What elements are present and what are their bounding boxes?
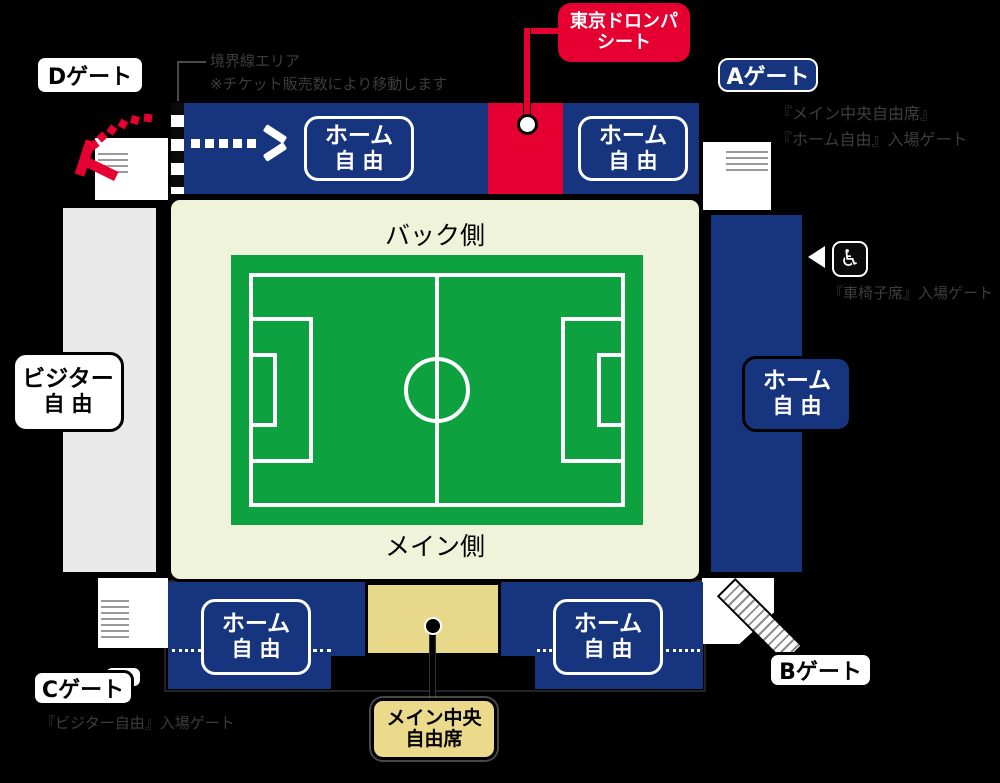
boundary-note-line1: 境界線エリア xyxy=(210,50,300,71)
stairs-c-gate xyxy=(101,596,129,642)
label-home-free-back-right: ホーム 自由 xyxy=(578,116,688,181)
label-visitor-free: ビジター 自由 xyxy=(12,352,124,432)
wheelchair-note: 『車椅子席』入場ゲート xyxy=(828,282,993,303)
main-center-callout: メイン中央 自由席 xyxy=(371,698,497,760)
stadium-seating-map: ホーム 自由 ホーム 自由 バック側 メイン側 ビジター 自由 ホーム 自由 xyxy=(0,0,1000,783)
goal-area-left xyxy=(249,353,277,427)
boundary-dotted-line xyxy=(172,649,201,652)
gate-d-label: Dゲート xyxy=(35,55,145,95)
gate-c-label: Cゲート xyxy=(32,670,134,706)
d-gate-entrance-marker xyxy=(171,103,184,194)
goal-area-right xyxy=(597,353,625,427)
wheelchair-icon: ♿ xyxy=(832,241,868,277)
label-home-free-side: ホーム 自由 xyxy=(742,356,852,432)
wheelchair-arrow-icon xyxy=(808,246,825,268)
boundary-note-line-h xyxy=(177,61,206,63)
label-home-free-main-right: ホーム 自由 xyxy=(553,599,663,675)
back-side-label: バック側 xyxy=(171,216,699,252)
boundary-dotted-line xyxy=(537,649,552,652)
gate-b-label: Bゲート xyxy=(768,652,873,688)
stand-back: ホーム 自由 ホーム 自由 xyxy=(168,100,702,197)
boundary-note-line-v xyxy=(177,61,179,101)
boundary-dotted-line xyxy=(666,649,700,652)
a-gate-note-line2: 『ホーム自由』入場ゲート xyxy=(776,126,968,150)
d-gate-arrowhead-icon xyxy=(75,139,96,176)
dorompa-connector-v xyxy=(524,28,530,116)
c-gate-note: 『ビジター自由』入場ゲート xyxy=(40,712,235,733)
label-home-free-back-left: ホーム 自由 xyxy=(304,116,414,181)
dorompa-callout: 東京ドロンパ シート xyxy=(558,3,690,62)
main-center-connector xyxy=(430,634,435,702)
gate-a-label: Aゲート xyxy=(718,58,818,92)
pitch xyxy=(231,255,643,525)
boundary-dotted-line xyxy=(313,649,331,652)
field-area: バック側 メイン側 xyxy=(168,197,702,582)
label-home-free-main-left: ホーム 自由 xyxy=(201,599,311,675)
dorompa-anchor-circle xyxy=(517,114,538,135)
main-center-anchor-dot xyxy=(424,617,442,635)
arrow-chevron-icon xyxy=(263,125,289,161)
pitch-center-circle xyxy=(404,357,470,423)
main-side-label: メイン側 xyxy=(171,527,699,563)
stairs-a-gate xyxy=(726,147,768,173)
a-gate-note-line1: 『メイン中央自由席』 xyxy=(776,100,936,124)
boundary-note-line2: ※チケット販売数により移動します xyxy=(210,73,447,94)
